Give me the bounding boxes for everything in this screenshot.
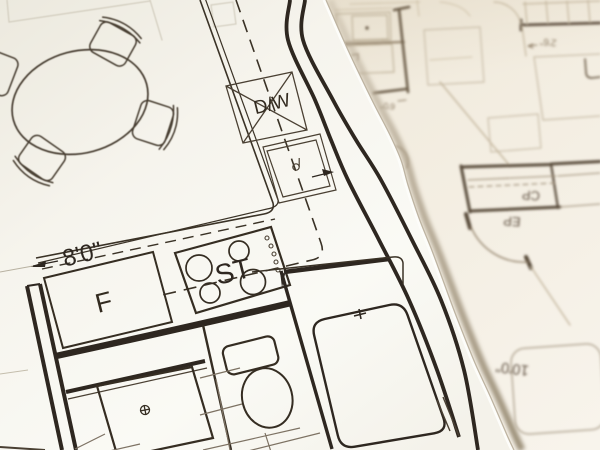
svg-text:2'6": 2'6" bbox=[539, 35, 557, 47]
svg-text:EP: EP bbox=[503, 213, 521, 229]
svg-text:CP: CP bbox=[521, 187, 540, 203]
